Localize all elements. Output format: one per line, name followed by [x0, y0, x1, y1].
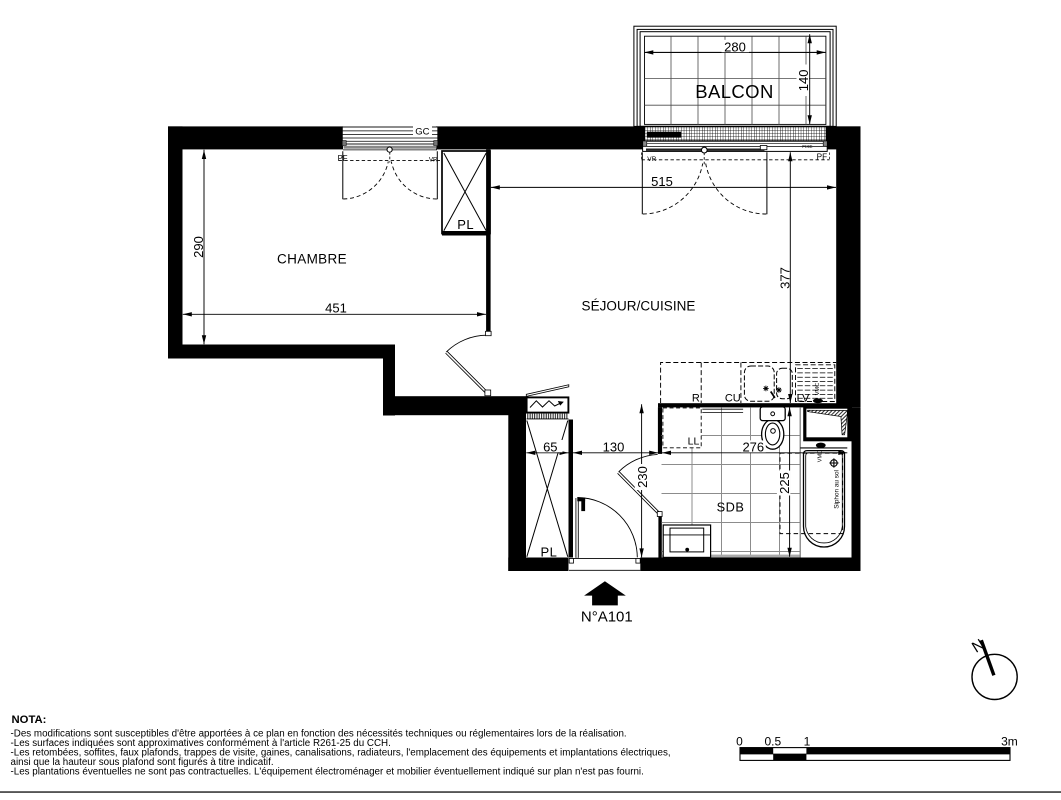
svg-text:LL: LL [688, 435, 700, 447]
svg-text:PL: PL [457, 217, 474, 232]
svg-text:377: 377 [778, 267, 793, 289]
svg-text:451: 451 [325, 301, 347, 316]
svg-text:LV: LV [797, 392, 810, 404]
svg-text:SÉJOUR/CUISINE: SÉJOUR/CUISINE [582, 299, 696, 314]
svg-text:FIXE: FIXE [802, 144, 812, 149]
svg-text:CHAMBRE: CHAMBRE [277, 252, 347, 267]
svg-text:-Les plantations éventuelles n: -Les plantations éventuelles ne sont pas… [11, 767, 644, 778]
svg-text:N°A101: N°A101 [581, 608, 633, 625]
svg-text:225: 225 [777, 472, 792, 494]
svg-text:CU: CU [725, 392, 741, 404]
svg-text:PL: PL [540, 545, 557, 560]
svg-text:NOTA:: NOTA: [12, 714, 47, 726]
svg-text:290: 290 [191, 236, 206, 258]
svg-text:0.5: 0.5 [764, 734, 781, 748]
svg-text:515: 515 [651, 174, 673, 189]
svg-text:PF: PF [817, 152, 827, 161]
svg-text:VR: VR [429, 156, 438, 163]
svg-text:280: 280 [724, 39, 746, 54]
svg-text:140: 140 [796, 70, 811, 92]
svg-text:276: 276 [742, 440, 764, 455]
svg-text:230: 230 [635, 466, 650, 488]
svg-text:0: 0 [736, 734, 743, 748]
svg-text:PF: PF [338, 154, 348, 163]
svg-text:GC: GC [415, 126, 429, 137]
svg-text:Siphon au sol: Siphon au sol [833, 470, 840, 509]
svg-text:BALCON: BALCON [695, 81, 773, 102]
svg-text:VR: VR [647, 156, 656, 163]
svg-text:R: R [692, 392, 700, 404]
svg-text:SDB: SDB [717, 500, 745, 515]
svg-text:65: 65 [543, 440, 557, 455]
svg-text:130: 130 [603, 440, 625, 455]
svg-text:VMC: VMC [815, 383, 821, 395]
svg-text:3m: 3m [1001, 734, 1018, 748]
svg-text:BALUSTRADE: BALUSTRADE [648, 132, 679, 137]
svg-text:1: 1 [804, 734, 811, 748]
svg-text:VMC: VMC [818, 450, 824, 462]
